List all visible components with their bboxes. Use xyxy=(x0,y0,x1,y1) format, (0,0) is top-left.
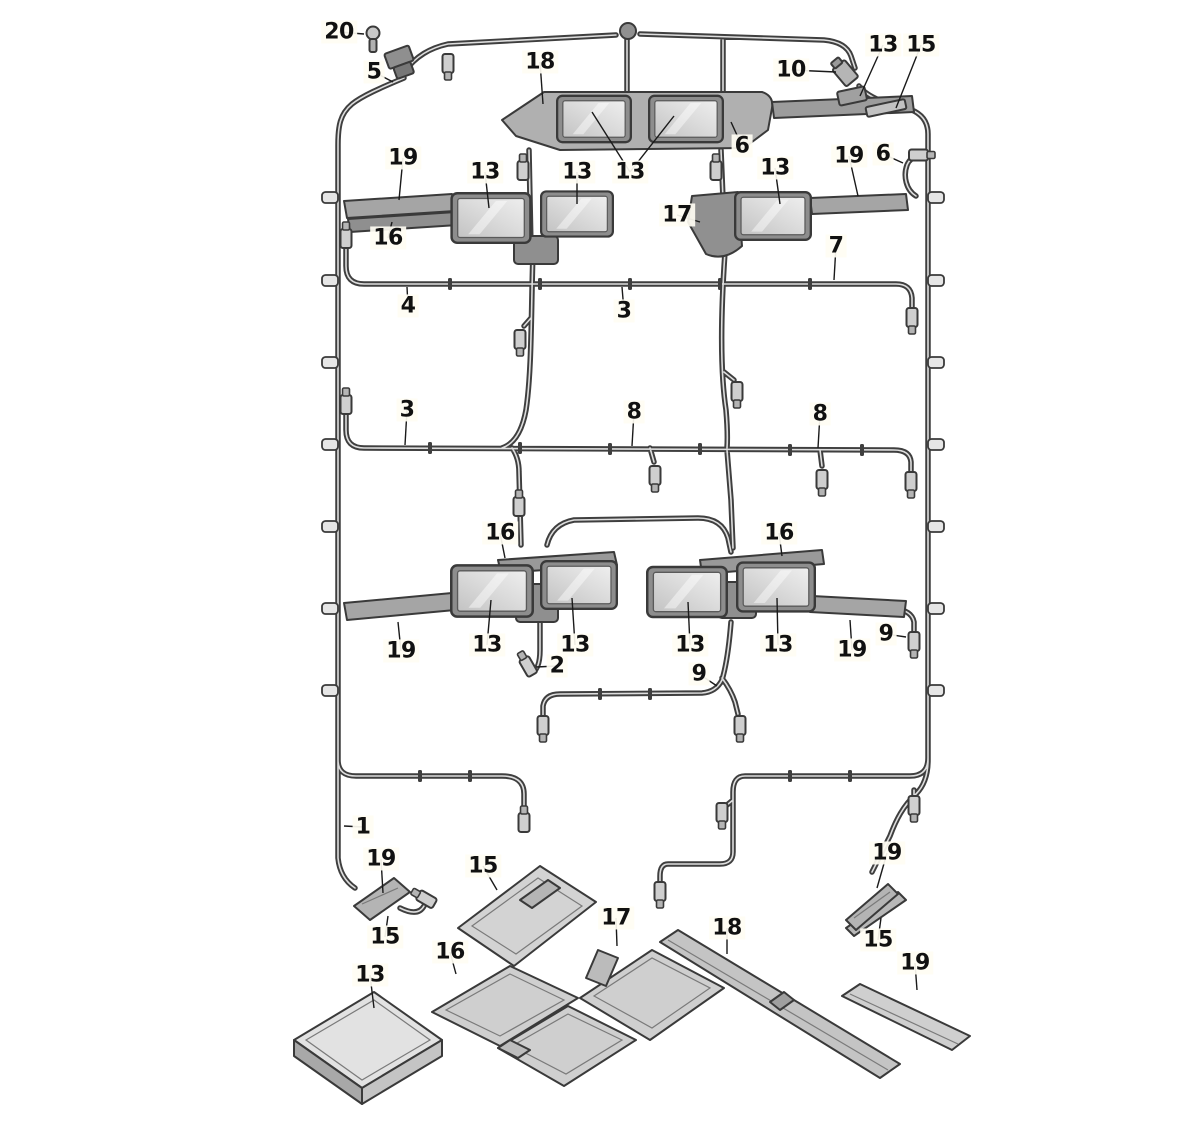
callout-leader-line xyxy=(616,918,617,946)
callout-leader-line xyxy=(344,826,363,827)
callout-leader-line xyxy=(485,172,489,208)
callout-leader-line xyxy=(779,533,782,556)
callout-leader-line xyxy=(777,598,778,645)
callout-leader-line xyxy=(370,975,374,1008)
callout-leader-line xyxy=(407,287,408,306)
callout-leader-line xyxy=(731,122,742,146)
callout-leader-line xyxy=(883,154,903,163)
callout-leader-line xyxy=(540,62,543,104)
callout-leader-line xyxy=(860,45,883,96)
callout-leader-line xyxy=(849,156,858,196)
callout-leader-line xyxy=(878,918,881,940)
callout-leader-line xyxy=(500,533,505,558)
callout-leader-line xyxy=(381,859,383,893)
callout-leader-line xyxy=(399,158,403,200)
callout-leader-line xyxy=(775,168,780,204)
callout-leader-line xyxy=(850,620,852,650)
callout-leader-line xyxy=(834,246,836,280)
callout-leader-line xyxy=(405,410,407,445)
callout-leader-line xyxy=(632,412,634,446)
callout-leader-line xyxy=(791,70,836,72)
callout-leader-line xyxy=(398,622,401,651)
callout-leader-line xyxy=(630,116,674,172)
callout-leader-line xyxy=(877,853,887,888)
leader-lines-overlay xyxy=(0,0,1200,1146)
callout-leader-line xyxy=(487,600,491,645)
callout-leader-line xyxy=(622,287,624,311)
callout-leader-line xyxy=(450,952,456,974)
callout-leader-line xyxy=(385,916,388,937)
callout-leader-line xyxy=(699,674,717,686)
callout-leader-line xyxy=(388,222,392,238)
callout-leader-line xyxy=(818,414,820,448)
diagram-stage: 2051813101315661913171913131674338816161… xyxy=(0,0,1200,1146)
callout-leader-line xyxy=(688,602,690,645)
callout-leader-line xyxy=(592,112,630,172)
callout-leader-line xyxy=(536,666,557,667)
callout-leader-line xyxy=(483,866,497,890)
callout-leader-line xyxy=(339,32,364,34)
callout-leader-line xyxy=(572,598,575,645)
callout-leader-line xyxy=(915,963,917,990)
callout-leader-line xyxy=(896,45,921,108)
callout-leader-line xyxy=(374,72,393,82)
callout-leader-line xyxy=(886,634,906,637)
callout-leader-line xyxy=(677,215,700,222)
